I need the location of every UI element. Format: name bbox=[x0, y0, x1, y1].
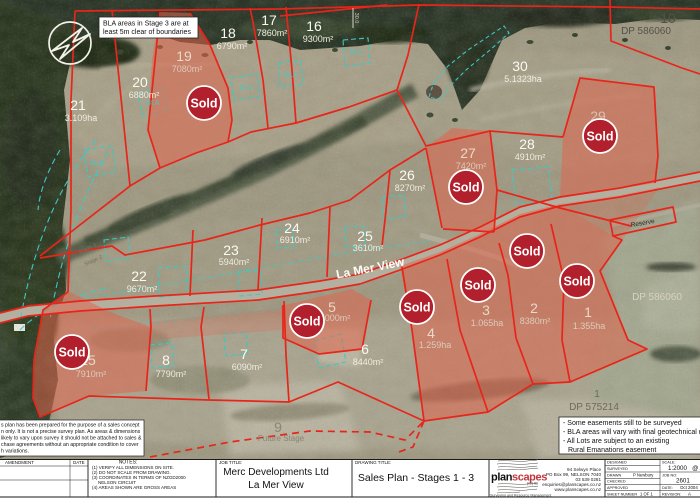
svg-text:SCALE:: SCALE: bbox=[662, 461, 676, 465]
svg-text:8: 8 bbox=[162, 352, 170, 368]
svg-text:Future Stage: Future Stage bbox=[258, 434, 305, 443]
svg-text:20: 20 bbox=[132, 74, 148, 90]
svg-text:Sold: Sold bbox=[513, 245, 540, 259]
svg-text:27: 27 bbox=[460, 145, 476, 161]
svg-text:10: 10 bbox=[660, 10, 676, 26]
svg-text:2601: 2601 bbox=[676, 478, 690, 485]
svg-text:BLA: BLA bbox=[284, 72, 298, 79]
svg-text:least 5m clear of boundaries: least 5m clear of boundaries bbox=[103, 29, 191, 36]
svg-text:7: 7 bbox=[240, 346, 248, 362]
svg-text:Sold: Sold bbox=[563, 275, 590, 289]
svg-text:9300m²: 9300m² bbox=[303, 34, 334, 44]
svg-text:DRAWING TITLE:: DRAWING TITLE: bbox=[355, 460, 391, 465]
svg-text:P Newbury: P Newbury bbox=[633, 472, 654, 477]
svg-text:1.065ha: 1.065ha bbox=[471, 318, 504, 328]
svg-text:Oct 2004: Oct 2004 bbox=[680, 485, 698, 490]
svg-text:7420m²: 7420m² bbox=[456, 161, 487, 171]
svg-text:30.0: 30.0 bbox=[353, 13, 359, 24]
svg-text:4910m²: 4910m² bbox=[515, 152, 546, 162]
svg-text:9: 9 bbox=[274, 419, 282, 435]
svg-text:DP 575214: DP 575214 bbox=[569, 402, 619, 413]
svg-text:1 OF 1: 1 OF 1 bbox=[640, 491, 653, 496]
svg-text:Sold: Sold bbox=[464, 279, 491, 293]
svg-text:1: 1 bbox=[584, 304, 592, 320]
svg-text:3610m²: 3610m² bbox=[353, 243, 384, 253]
svg-text:21: 21 bbox=[70, 97, 86, 113]
svg-text:Sales Plan - Stages 1 - 3: Sales Plan - Stages 1 - 3 bbox=[358, 472, 474, 484]
svg-text:16: 16 bbox=[306, 18, 322, 34]
svg-text:17: 17 bbox=[261, 12, 277, 28]
svg-text:1: 1 bbox=[594, 389, 600, 400]
svg-text:Sold: Sold bbox=[58, 346, 85, 360]
svg-text:23: 23 bbox=[223, 242, 239, 258]
svg-text:- Some easements still to be s: - Some easements still to be surveyed bbox=[563, 420, 682, 427]
svg-text:s plan has been prepared for t: s plan has been prepared for the purpose… bbox=[1, 423, 140, 429]
svg-text:www.planscapes.co.nz: www.planscapes.co.nz bbox=[555, 487, 602, 492]
svg-text:Sold: Sold bbox=[403, 301, 430, 315]
svg-text:6: 6 bbox=[361, 341, 369, 357]
svg-text:APPROVED: APPROVED bbox=[607, 486, 628, 490]
svg-text:1.355ha: 1.355ha bbox=[573, 321, 606, 331]
svg-text:3.109ha: 3.109ha bbox=[65, 113, 98, 123]
svg-text:7910m²: 7910m² bbox=[76, 369, 107, 379]
svg-text:24: 24 bbox=[284, 220, 300, 236]
svg-text:A: A bbox=[688, 491, 691, 496]
svg-text:(4) AREAS SHOWN ARE GROSS AREA: (4) AREAS SHOWN ARE GROSS AREAS bbox=[92, 485, 176, 490]
svg-text:BLA: BLA bbox=[349, 49, 363, 56]
svg-text:BLA: BLA bbox=[239, 85, 253, 92]
svg-text:Surveying and Resource Managem: Surveying and Resource Management bbox=[490, 494, 551, 498]
svg-text:BLA areas in Stage 3 are at: BLA areas in Stage 3 are at bbox=[103, 21, 189, 28]
svg-text:n only. It is not a precise s: n only. It is not a precise survey plan.… bbox=[1, 429, 141, 435]
svg-text:DATE: DATE bbox=[73, 460, 85, 465]
svg-text:AMENDMENT: AMENDMENT bbox=[5, 460, 34, 465]
svg-text:SHEET NUMBER: SHEET NUMBER bbox=[607, 492, 637, 496]
svg-text:28: 28 bbox=[519, 136, 535, 152]
svg-text:7790m²: 7790m² bbox=[156, 369, 187, 379]
svg-text:5.1323ha: 5.1323ha bbox=[504, 74, 542, 84]
svg-text:8380m²: 8380m² bbox=[520, 316, 551, 326]
svg-text:REVISION:: REVISION: bbox=[662, 492, 681, 496]
svg-text:JOB TITLE:: JOB TITLE: bbox=[219, 460, 242, 465]
svg-text:Sold: Sold bbox=[586, 130, 613, 144]
svg-text:9670m²: 9670m² bbox=[127, 284, 158, 294]
svg-text:1.259ha: 1.259ha bbox=[419, 340, 452, 350]
svg-text:chase agreements without an ap: chase agreements without an appropriate … bbox=[1, 442, 139, 448]
svg-text:3: 3 bbox=[482, 302, 490, 318]
svg-text:(nz) ltd: (nz) ltd bbox=[527, 482, 538, 486]
svg-text:DATE:: DATE: bbox=[662, 486, 673, 490]
svg-text:BLA: BLA bbox=[146, 100, 160, 107]
svg-text:2: 2 bbox=[530, 300, 538, 316]
svg-text:DP 586060: DP 586060 bbox=[632, 292, 682, 303]
svg-text:BLA: BLA bbox=[90, 160, 104, 167]
svg-text:7080m²: 7080m² bbox=[172, 64, 203, 74]
svg-text:La Mer View: La Mer View bbox=[248, 480, 304, 491]
svg-text:22: 22 bbox=[131, 268, 147, 284]
svg-text:5940m²: 5940m² bbox=[219, 257, 250, 267]
svg-text:JOB NO:: JOB NO: bbox=[662, 473, 677, 477]
svg-text:8270m²: 8270m² bbox=[395, 183, 426, 193]
svg-text:6790m²: 6790m² bbox=[217, 41, 248, 51]
svg-text:likely to vary upon survey it: likely to vary upon survey it should not… bbox=[1, 436, 142, 442]
svg-text:DRAWN: DRAWN bbox=[607, 473, 621, 477]
svg-text:19: 19 bbox=[176, 48, 192, 64]
svg-text:- BLA areas will vary with fin: - BLA areas will vary with final geotech… bbox=[563, 429, 700, 436]
svg-text:DP 586060: DP 586060 bbox=[621, 26, 671, 37]
svg-text:6910m²: 6910m² bbox=[280, 235, 311, 245]
svg-text:Sold: Sold bbox=[293, 315, 320, 329]
svg-text:Merc Developments Ltd: Merc Developments Ltd bbox=[223, 467, 329, 478]
svg-text:7860m²: 7860m² bbox=[257, 28, 288, 38]
svg-text:h variations.: h variations. bbox=[1, 449, 29, 455]
svg-text:Sold: Sold bbox=[190, 97, 217, 111]
svg-text:8440m²: 8440m² bbox=[353, 357, 384, 367]
svg-text:25: 25 bbox=[357, 228, 373, 244]
svg-text:6090m²: 6090m² bbox=[232, 362, 263, 372]
svg-text:30: 30 bbox=[512, 58, 528, 74]
svg-text:26: 26 bbox=[399, 167, 415, 183]
svg-text:DESIGNED: DESIGNED bbox=[607, 461, 627, 465]
svg-text:CHECKED: CHECKED bbox=[607, 480, 626, 484]
svg-text:Rural Emanations easement: Rural Emanations easement bbox=[568, 447, 656, 454]
svg-text:18: 18 bbox=[220, 25, 236, 41]
svg-text:SURVEYED: SURVEYED bbox=[607, 467, 628, 471]
svg-text:planscapes: planscapes bbox=[491, 472, 547, 484]
svg-text:- All Lots are subject to an e: - All Lots are subject to an existing bbox=[563, 438, 669, 445]
svg-text:6880m²: 6880m² bbox=[129, 90, 160, 100]
svg-text:4: 4 bbox=[427, 325, 435, 341]
svg-text:1:2000 @ A3: 1:2000 @ A3 bbox=[668, 465, 700, 472]
svg-text:Sold: Sold bbox=[452, 181, 479, 195]
